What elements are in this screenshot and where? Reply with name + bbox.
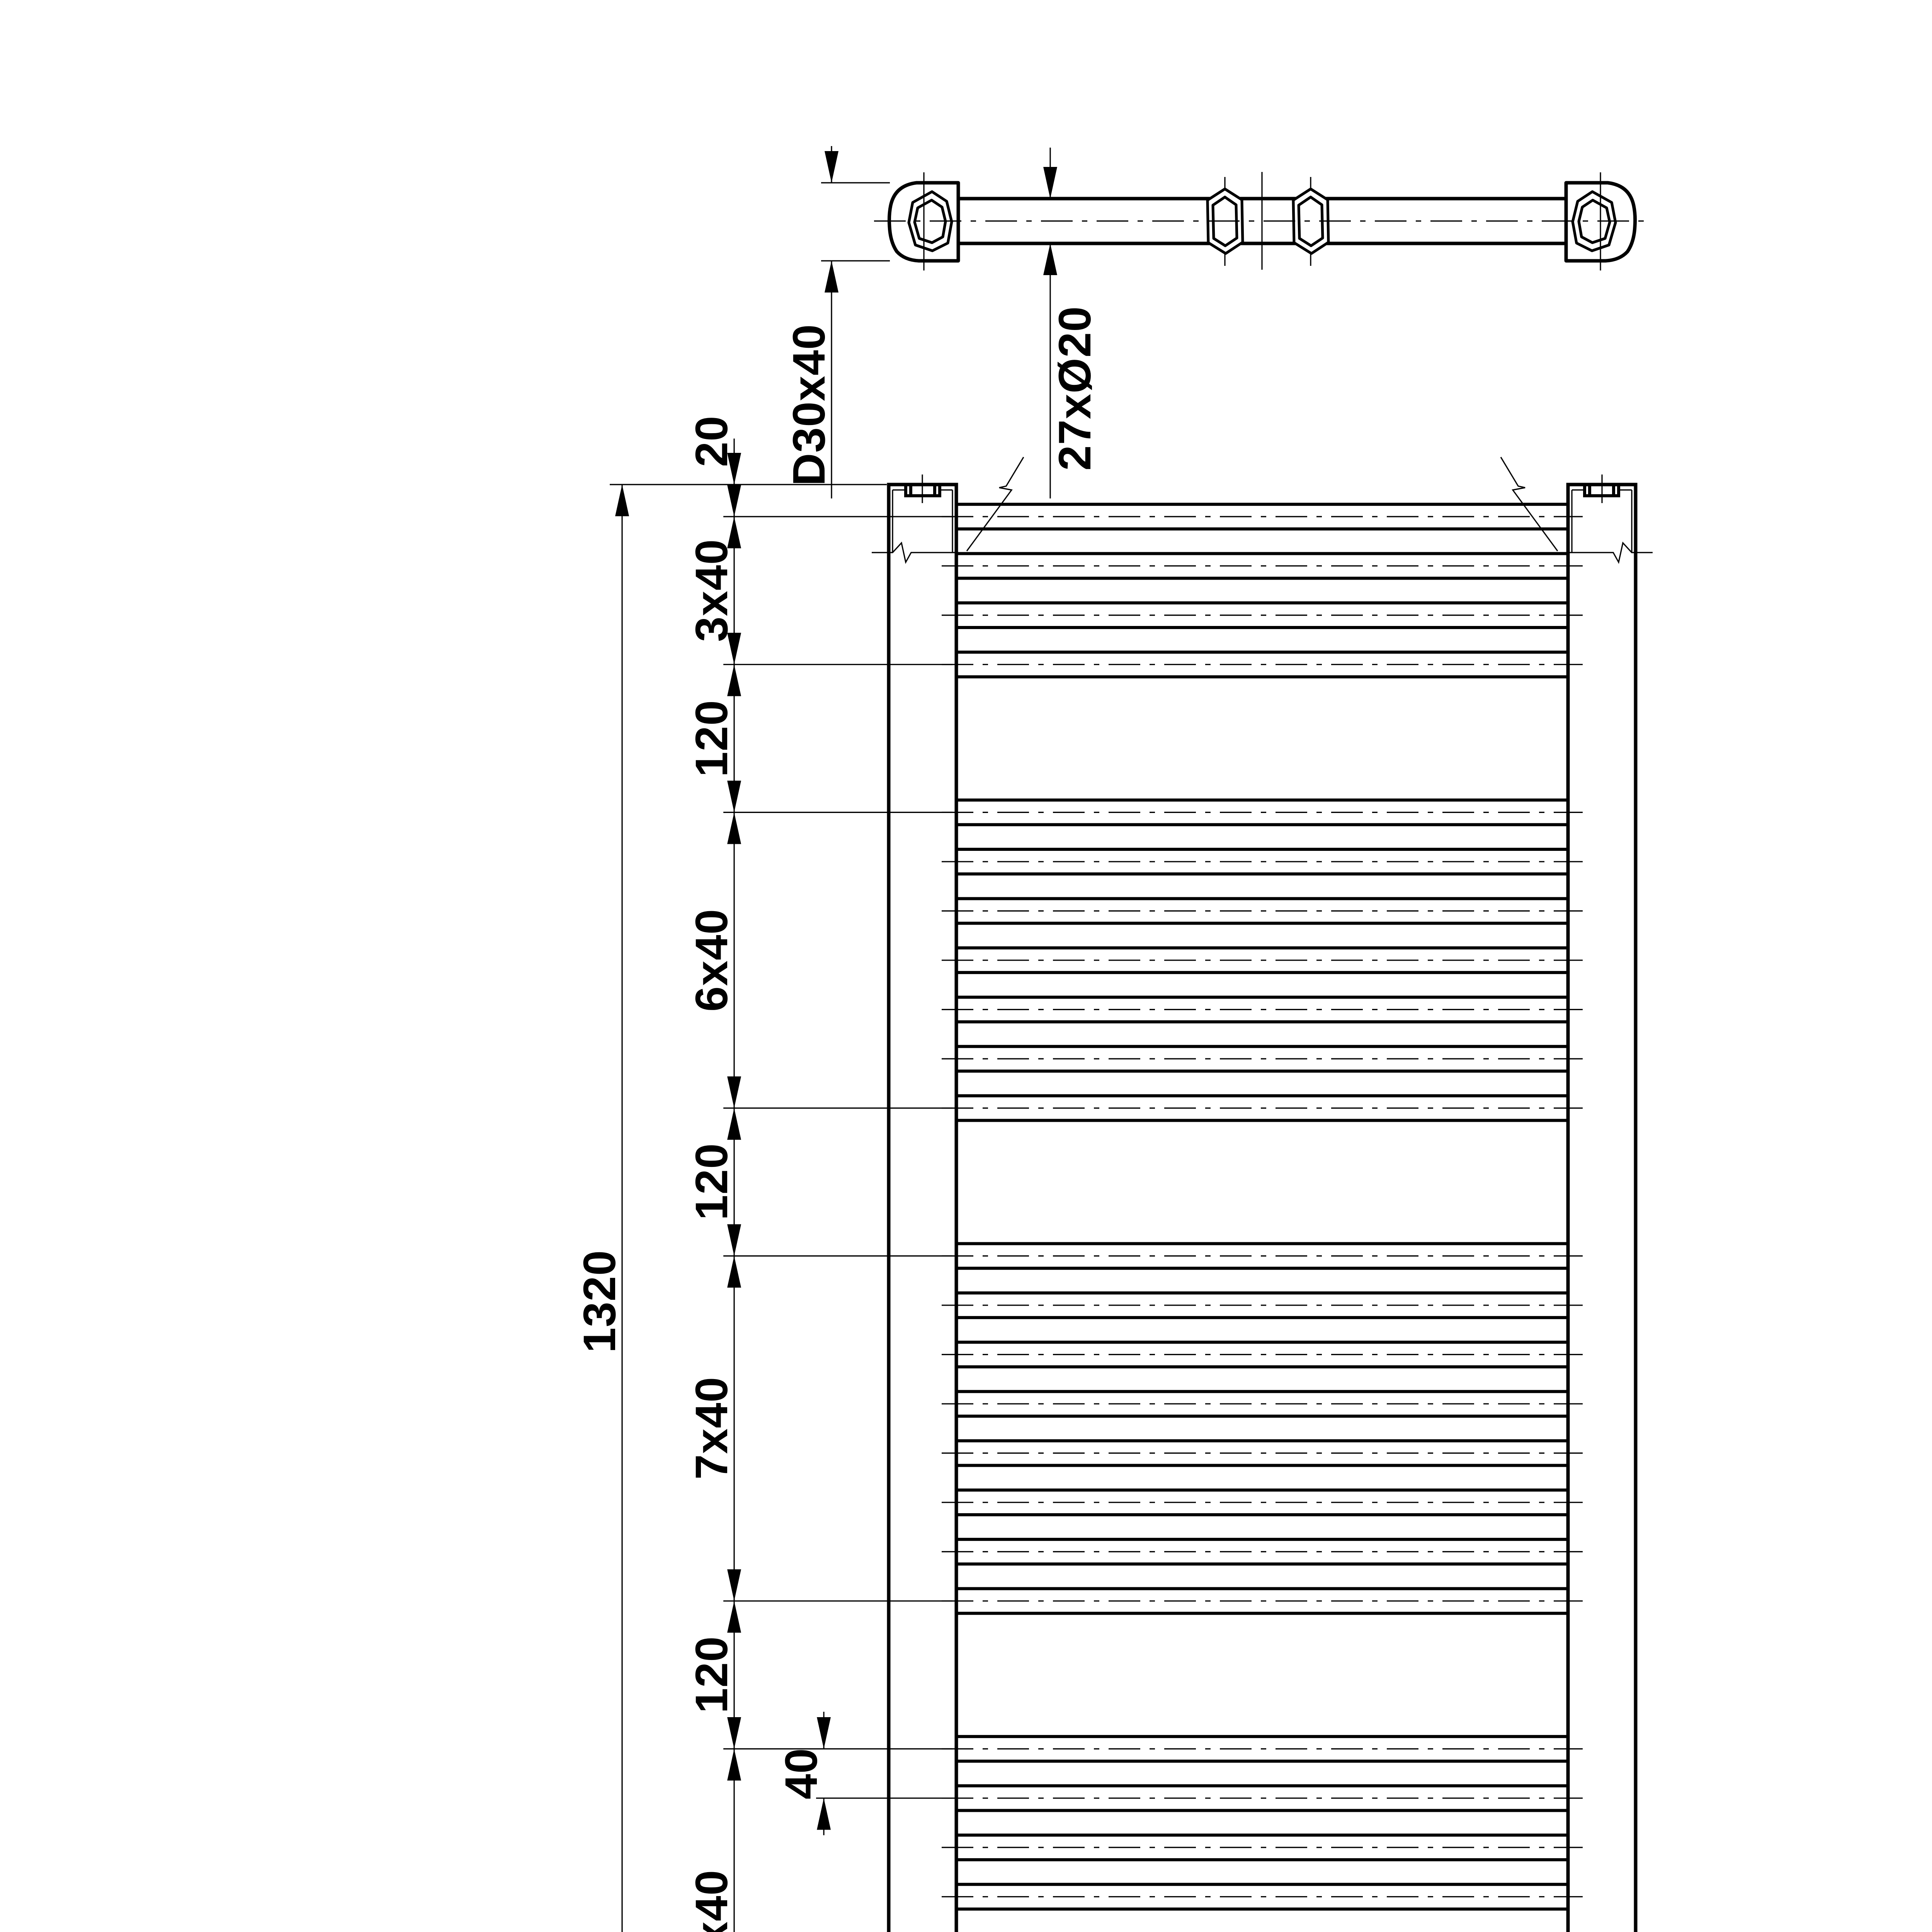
gap2-label: 120 — [686, 1143, 737, 1220]
group4-label: 7x40 — [686, 1870, 737, 1932]
dimension-arrow — [727, 665, 741, 696]
dimension-arrow — [727, 1569, 741, 1601]
gap3-label: 120 — [686, 1636, 737, 1713]
dimension-arrow — [727, 1224, 741, 1256]
dimension-arrow — [817, 1717, 831, 1749]
dimension-arrow — [817, 1798, 831, 1830]
front-view: 1320 20 3x40 120 6x40 120 7x40 120 40 7x… — [574, 415, 1653, 1932]
dimension-arrow — [727, 485, 741, 517]
d30x40-label: D30x40 — [784, 324, 835, 486]
dimension-arrow — [727, 1717, 741, 1749]
dimension-1320: 1320 — [574, 485, 629, 1932]
dimension-arrow — [727, 1601, 741, 1633]
dimension-chain — [610, 439, 952, 1932]
wall-bracket-cap — [872, 457, 1024, 562]
rungs — [942, 504, 1583, 1932]
top-margin-label: 20 — [686, 415, 737, 467]
dimension-arrow — [727, 1749, 741, 1781]
dimension-arrow — [727, 1077, 741, 1108]
dimension-arrow — [727, 781, 741, 812]
height-label: 1320 — [574, 1250, 625, 1353]
dimension-d30x40: D30x40 — [784, 146, 890, 498]
group3-label: 7x40 — [686, 1377, 737, 1480]
group1-label: 3x40 — [686, 539, 737, 642]
dimension-arrow — [727, 1256, 741, 1287]
wall-bracket-cap-top-right — [1501, 457, 1653, 562]
group2-label: 6x40 — [686, 909, 737, 1012]
gap1-label: 120 — [686, 700, 737, 777]
pitch-detail-label: 40 — [776, 1748, 827, 1799]
27x20-label: 27xØ20 — [1049, 306, 1100, 471]
top-view: D30x40 27xØ20 — [784, 146, 1651, 498]
dimension-arrow — [727, 812, 741, 844]
dimension-arrow — [727, 1108, 741, 1140]
hex-fitting-inner — [1299, 197, 1323, 246]
radiator-dimension-drawing: D30x40 27xØ20 — [0, 0, 1932, 1932]
